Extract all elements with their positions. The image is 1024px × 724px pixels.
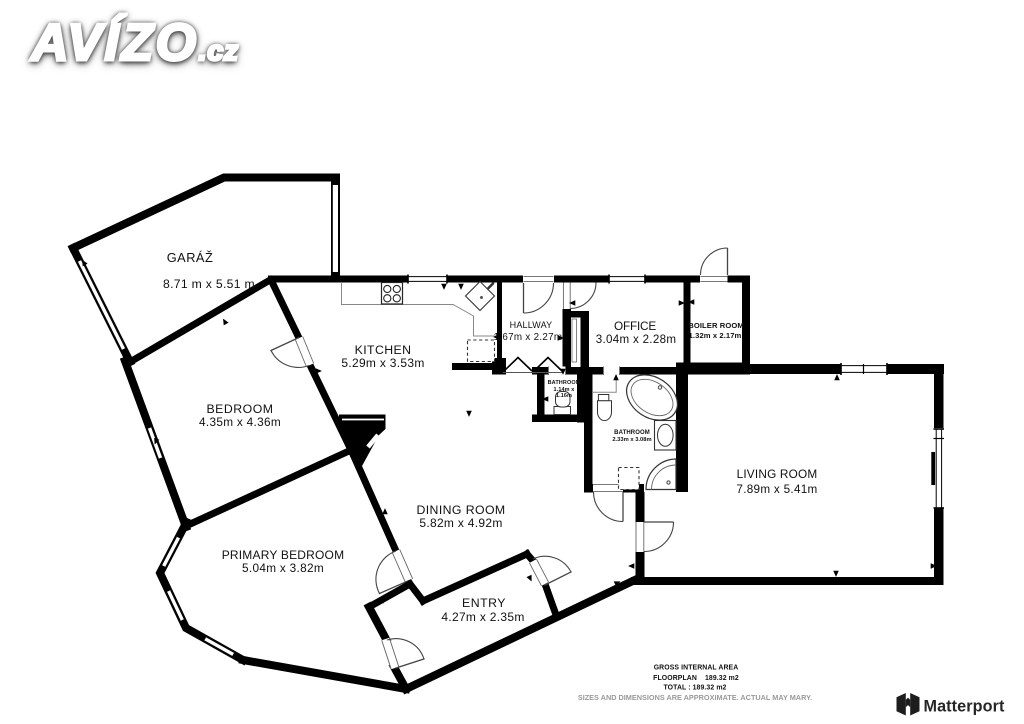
- svg-text:7.89m x 5.41m: 7.89m x 5.41m: [736, 483, 817, 496]
- svg-text:DINING ROOM: DINING ROOM: [416, 503, 505, 517]
- svg-text:5.82m x 4.92m: 5.82m x 4.92m: [419, 516, 502, 530]
- svg-text:4.27m x 2.35m: 4.27m x 2.35m: [441, 610, 524, 624]
- svg-text:2.33m x 3.08m: 2.33m x 3.08m: [612, 437, 651, 443]
- svg-text:4.35m x 4.36m: 4.35m x 4.36m: [199, 415, 281, 429]
- svg-text:FLOORPLAN 189.32 m2: FLOORPLAN 189.32 m2: [653, 675, 739, 682]
- svg-text:KITCHEN: KITCHEN: [355, 343, 412, 357]
- svg-text:Matterport: Matterport: [924, 698, 1006, 716]
- svg-text:SIZES AND DIMENSIONS ARE APPRO: SIZES AND DIMENSIONS ARE APPROXIMATE. AC…: [578, 693, 812, 702]
- svg-text:PRIMARY BEDROOM: PRIMARY BEDROOM: [222, 548, 345, 562]
- svg-text:1.16m: 1.16m: [556, 393, 572, 399]
- svg-text:3.04m x 2.28m: 3.04m x 2.28m: [596, 333, 677, 346]
- svg-text:BEDROOM: BEDROOM: [206, 402, 273, 416]
- svg-text:BATHROOM: BATHROOM: [548, 380, 581, 386]
- svg-text:5.29m x 3.53m: 5.29m x 3.53m: [341, 356, 424, 370]
- svg-text:LIVING ROOM: LIVING ROOM: [737, 467, 818, 481]
- svg-text:8.71 m x 5.51 m: 8.71 m x 5.51 m: [163, 277, 255, 291]
- svg-text:BATHROOM: BATHROOM: [614, 430, 650, 436]
- svg-text:GROSS INTERNAL AREA: GROSS INTERNAL AREA: [654, 665, 739, 672]
- svg-text:1.32m x 2.17m: 1.32m x 2.17m: [689, 331, 742, 340]
- svg-text:BOILER ROOM: BOILER ROOM: [688, 321, 744, 330]
- svg-text:1.67m x 2.27m: 1.67m x 2.27m: [494, 332, 563, 343]
- svg-text:ENTRY: ENTRY: [462, 596, 506, 610]
- svg-text:HALLWAY: HALLWAY: [510, 320, 553, 330]
- svg-text:5.04m x 3.82m: 5.04m x 3.82m: [242, 561, 324, 575]
- svg-text:GARÁŽ: GARÁŽ: [167, 250, 214, 265]
- svg-text:OFFICE: OFFICE: [614, 319, 656, 333]
- svg-text:TOTAL : 189.32 m2: TOTAL : 189.32 m2: [664, 685, 727, 692]
